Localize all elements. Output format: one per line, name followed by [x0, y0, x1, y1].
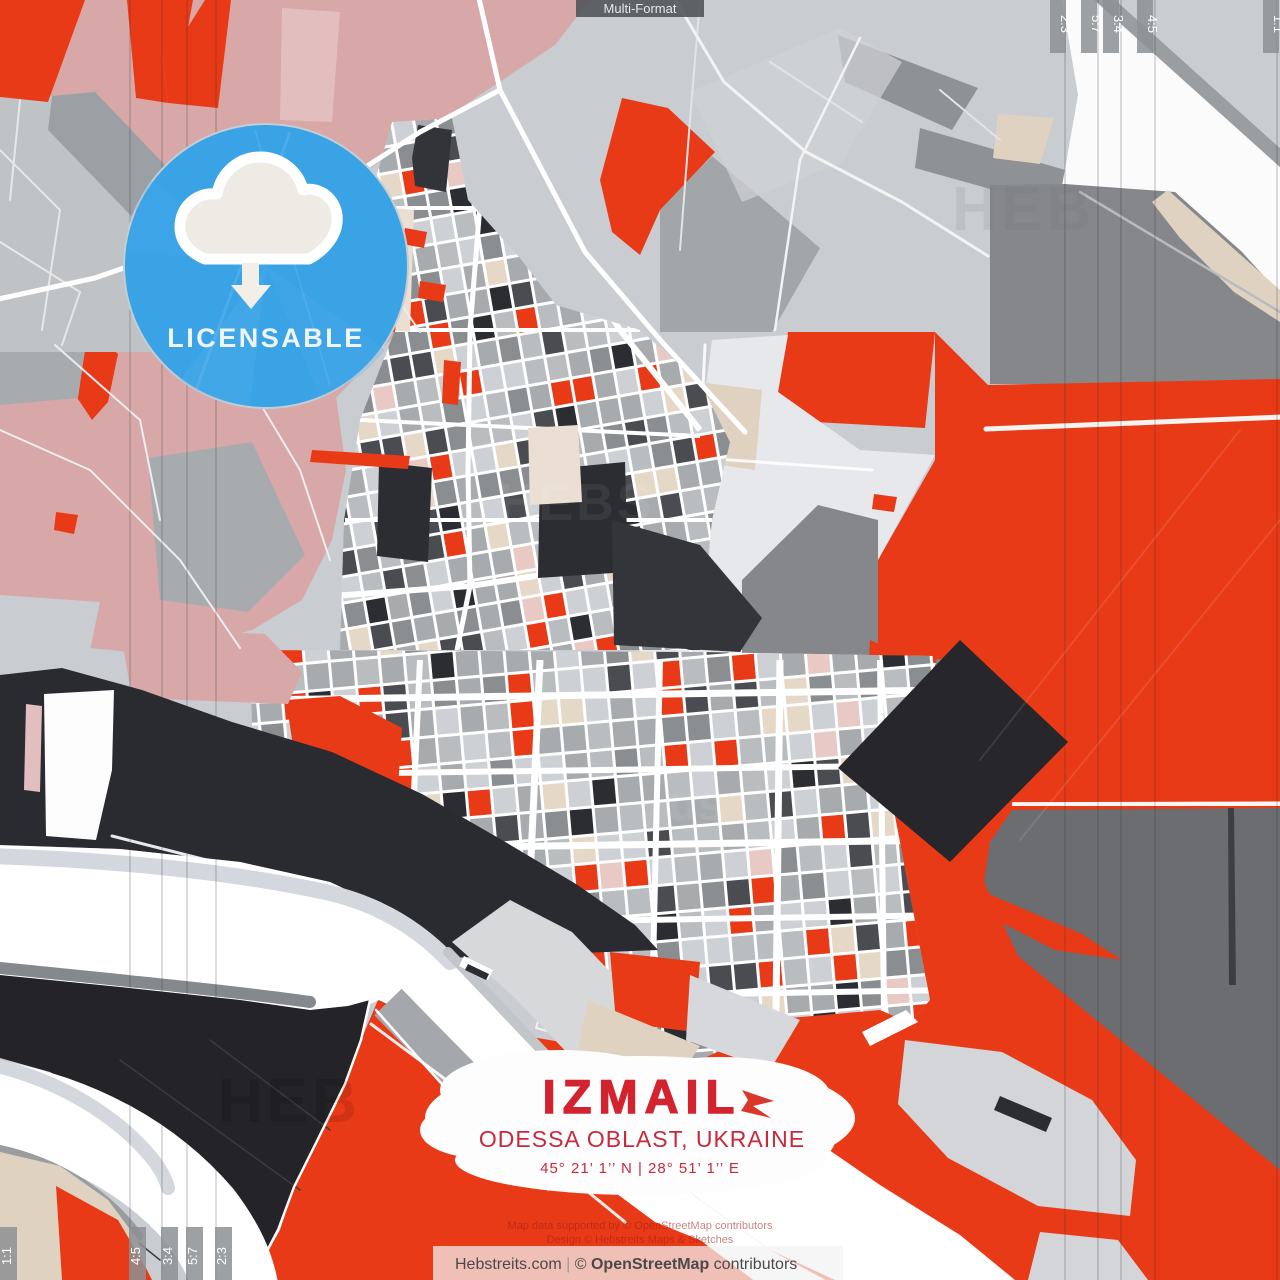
svg-text:Design © Hebstreits Maps & Ske: Design © Hebstreits Maps & Sketches	[547, 1234, 734, 1246]
svg-text:IZMAIL: IZMAIL	[543, 1070, 742, 1123]
svg-text:5:7: 5:7	[185, 1247, 200, 1265]
svg-text:3:4: 3:4	[1111, 15, 1126, 33]
svg-text:45° 21’ 1’’ N | 28° 51’: 45° 21’ 1’’ N | 28° 51’ 1’’ E	[540, 1160, 740, 1177]
svg-text:ODESSA OBLAST, UKRAINE: ODESSA OBLAST, UKRAINE	[479, 1126, 805, 1152]
svg-text:Hebstreits.com | © OpenStreetM: Hebstreits.com | © OpenStreetMap contrib…	[455, 1256, 797, 1273]
svg-text:5:7: 5:7	[1089, 15, 1104, 33]
svg-text:HEB: HEB	[218, 1067, 361, 1136]
svg-text:HEBS: HEBS	[498, 474, 654, 532]
svg-text:1:1: 1:1	[0, 1247, 14, 1265]
svg-text:2:3: 2:3	[1058, 15, 1073, 33]
svg-text:Map data supported by © OpenSt: Map data supported by © OpenStreetMap co…	[508, 1220, 773, 1232]
svg-text:2:3: 2:3	[214, 1247, 229, 1265]
svg-text:1:1: 1:1	[1271, 15, 1280, 33]
svg-text:4:5: 4:5	[1145, 15, 1160, 33]
svg-text:LICENSABLE: LICENSABLE	[167, 323, 365, 353]
svg-text:4:5: 4:5	[128, 1247, 143, 1265]
svg-text:3:4: 3:4	[160, 1247, 175, 1265]
svg-text:HEB: HEB	[952, 175, 1095, 244]
svg-text:us: us	[668, 778, 724, 831]
svg-text:Multi-Format: Multi-Format	[604, 1, 677, 16]
